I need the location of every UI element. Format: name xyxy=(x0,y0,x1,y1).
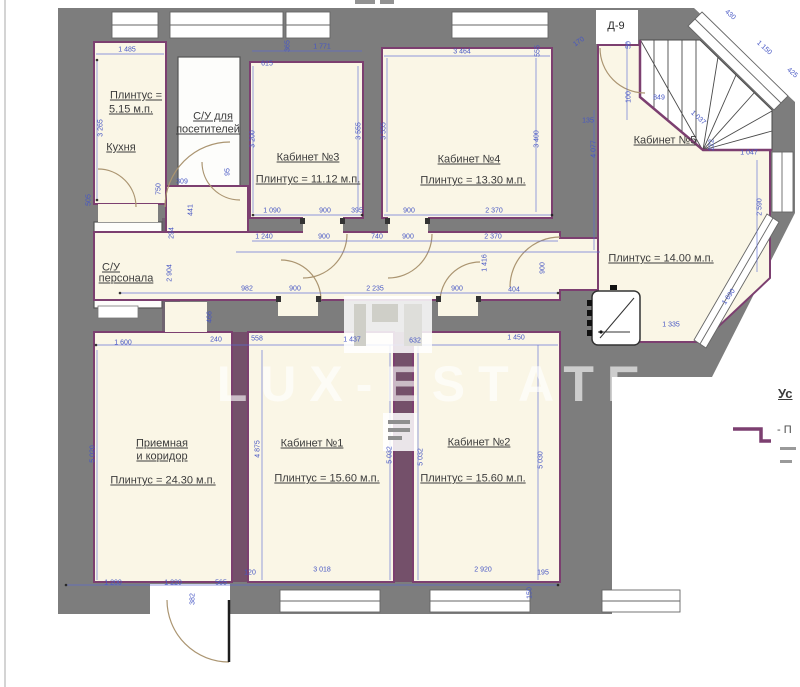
door-gap-office2 xyxy=(438,298,478,316)
room-kitchen xyxy=(94,42,166,204)
legend-item-label: - П xyxy=(777,424,792,436)
cut-off-dimension-mark xyxy=(355,0,375,4)
legend-text-fragment xyxy=(780,447,796,450)
room-reception xyxy=(94,332,232,582)
floor-plan-canvas: LUX-ESTATE Плинтус =5.15 м.п.КухняС/У дл… xyxy=(0,0,800,687)
door-gap-reception xyxy=(165,302,207,332)
cut-off-dimension-mark xyxy=(380,0,394,4)
shaft-box xyxy=(587,285,640,345)
watermark-logo-box-small xyxy=(383,413,417,451)
door-gap-entrance xyxy=(150,584,230,614)
door-gap-office3 xyxy=(303,216,343,234)
watermark-logo-box xyxy=(344,296,432,353)
door-mark-d9: Д-9 xyxy=(607,20,624,32)
door-gap-office1 xyxy=(278,298,318,316)
legend-text-fragment xyxy=(780,460,792,463)
room-office-3 xyxy=(250,62,363,218)
wc-fixture xyxy=(98,306,138,318)
corridor-lobby xyxy=(166,186,248,232)
legend-baseboard-symbol xyxy=(733,429,771,441)
watermark-text: LUX-ESTATE xyxy=(217,355,653,413)
door-gap-office4 xyxy=(388,216,428,234)
legend-heading: Ус xyxy=(778,386,793,401)
room-office-4 xyxy=(382,48,552,218)
room-wc-visitors xyxy=(178,57,240,186)
door-gap-kitchen xyxy=(98,204,158,222)
